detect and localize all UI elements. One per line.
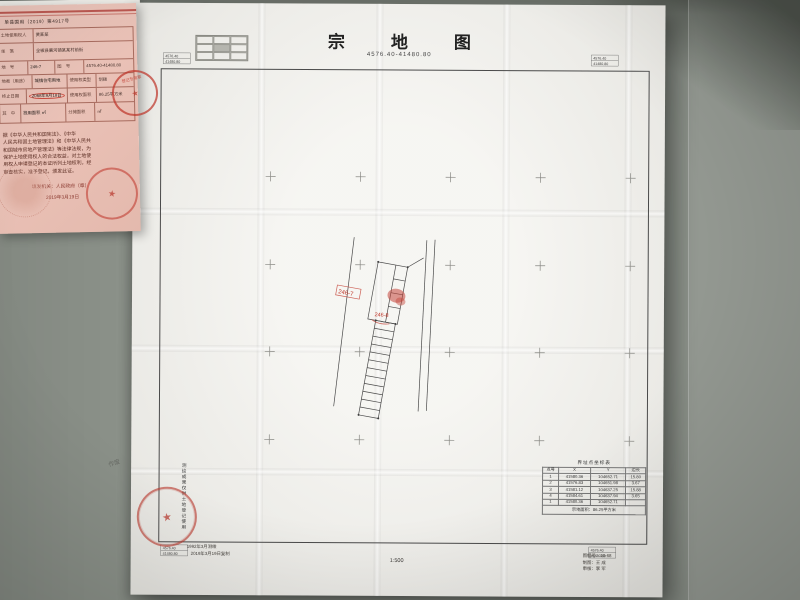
parcel-area-note: 宗地面积：86.25平方米 xyxy=(542,506,646,515)
table-row: 1 41580.36 104652.71 xyxy=(542,499,645,506)
certificate-top-rule-thin xyxy=(0,13,136,17)
field-label: 使用权类型 xyxy=(67,74,96,88)
field-value: 全椒县襄河镇某某村前街 xyxy=(34,41,133,60)
parcel-drawing: 246-7 246-8 xyxy=(315,224,457,428)
cell-y: 104652.71 xyxy=(590,499,626,506)
field-label: 地类（用途） xyxy=(0,75,33,89)
sheet-code: 图幅号：10-68 xyxy=(583,553,612,560)
field-value: 城镇住宅用地 xyxy=(32,74,67,88)
field-label: 坐 落 xyxy=(0,43,34,61)
svg-text:41480.80: 41480.80 xyxy=(593,62,608,66)
reviewer: 审核：李 军 xyxy=(583,566,612,573)
emblem-watermark xyxy=(0,163,52,218)
photo-of-cadastral-documents: { "colors": { "seal_red": "#c0392b", "do… xyxy=(0,0,800,600)
certificate-number: 单县国用（2019）第4917号 xyxy=(4,18,69,25)
map-survey-notes: 1992年3月测绘 2019年3月19日复制 xyxy=(187,544,230,557)
desk-edge xyxy=(688,0,800,600)
seal-star-icon: ★ xyxy=(161,509,173,524)
pencil-handwriting: 作废 xyxy=(107,456,121,468)
land-use-certificate: 单县国用（2019）第4917号 土地使用权人 黄某某 坐 落 全椒县襄河镇某某… xyxy=(0,3,141,234)
certificate-table: 土地使用权人 黄某某 坐 落 全椒县襄河镇某某村前街 地 号 246-7 图 号… xyxy=(0,26,135,124)
issuer-name: 人民政府（章） xyxy=(56,184,90,190)
svg-text:4576.40: 4576.40 xyxy=(165,54,178,58)
field-label: 图 号 xyxy=(55,60,84,74)
field-label: 地 号 xyxy=(0,61,28,75)
parcel-number-label-2: 246-8 xyxy=(374,312,388,319)
field-value: 独用面积 ㎡ xyxy=(21,104,66,123)
svg-text:41480.80: 41480.80 xyxy=(163,552,178,556)
field-value: 黄某某 xyxy=(33,27,132,42)
grid-crosses xyxy=(264,171,635,446)
field-label: 终止日期 xyxy=(0,89,27,104)
field-label: 其 中 xyxy=(0,104,21,122)
seal-star-icon: ★ xyxy=(107,188,116,200)
boundary-coordinate-table: 界址点坐标表 点号 X Y 边长 1 41580.36 104652.71 15… xyxy=(542,460,646,515)
cert-row: 其 中 独用面积 ㎡ 分摊面积 ㎡ xyxy=(0,102,134,123)
cadastral-map-sheet: 宗地图 4576.40-41480.80 4576.4041480.80 457… xyxy=(130,3,665,598)
seal-star-icon: ★ xyxy=(130,88,139,98)
coordinate-table-title: 界址点坐标表 xyxy=(542,460,646,467)
svg-text:41480.80: 41480.80 xyxy=(165,60,180,64)
field-label: 使用权面积 xyxy=(68,88,97,103)
svg-text:4576.40: 4576.40 xyxy=(593,57,606,61)
cell-length xyxy=(626,500,646,506)
expiry-date-circled: 2068年9月18日 xyxy=(29,92,65,100)
cell-point: 1 xyxy=(542,499,558,505)
svg-text:4576.40: 4576.40 xyxy=(591,549,604,553)
map-credits: 图幅号：10-68 制图：王 成 审核：李 军 xyxy=(583,553,612,573)
cell-x: 41580.36 xyxy=(559,499,591,506)
field-label: 分摊面积 xyxy=(66,103,95,122)
field-value: 246-7 xyxy=(28,61,55,75)
field-label: 土地使用权人 xyxy=(0,29,34,43)
